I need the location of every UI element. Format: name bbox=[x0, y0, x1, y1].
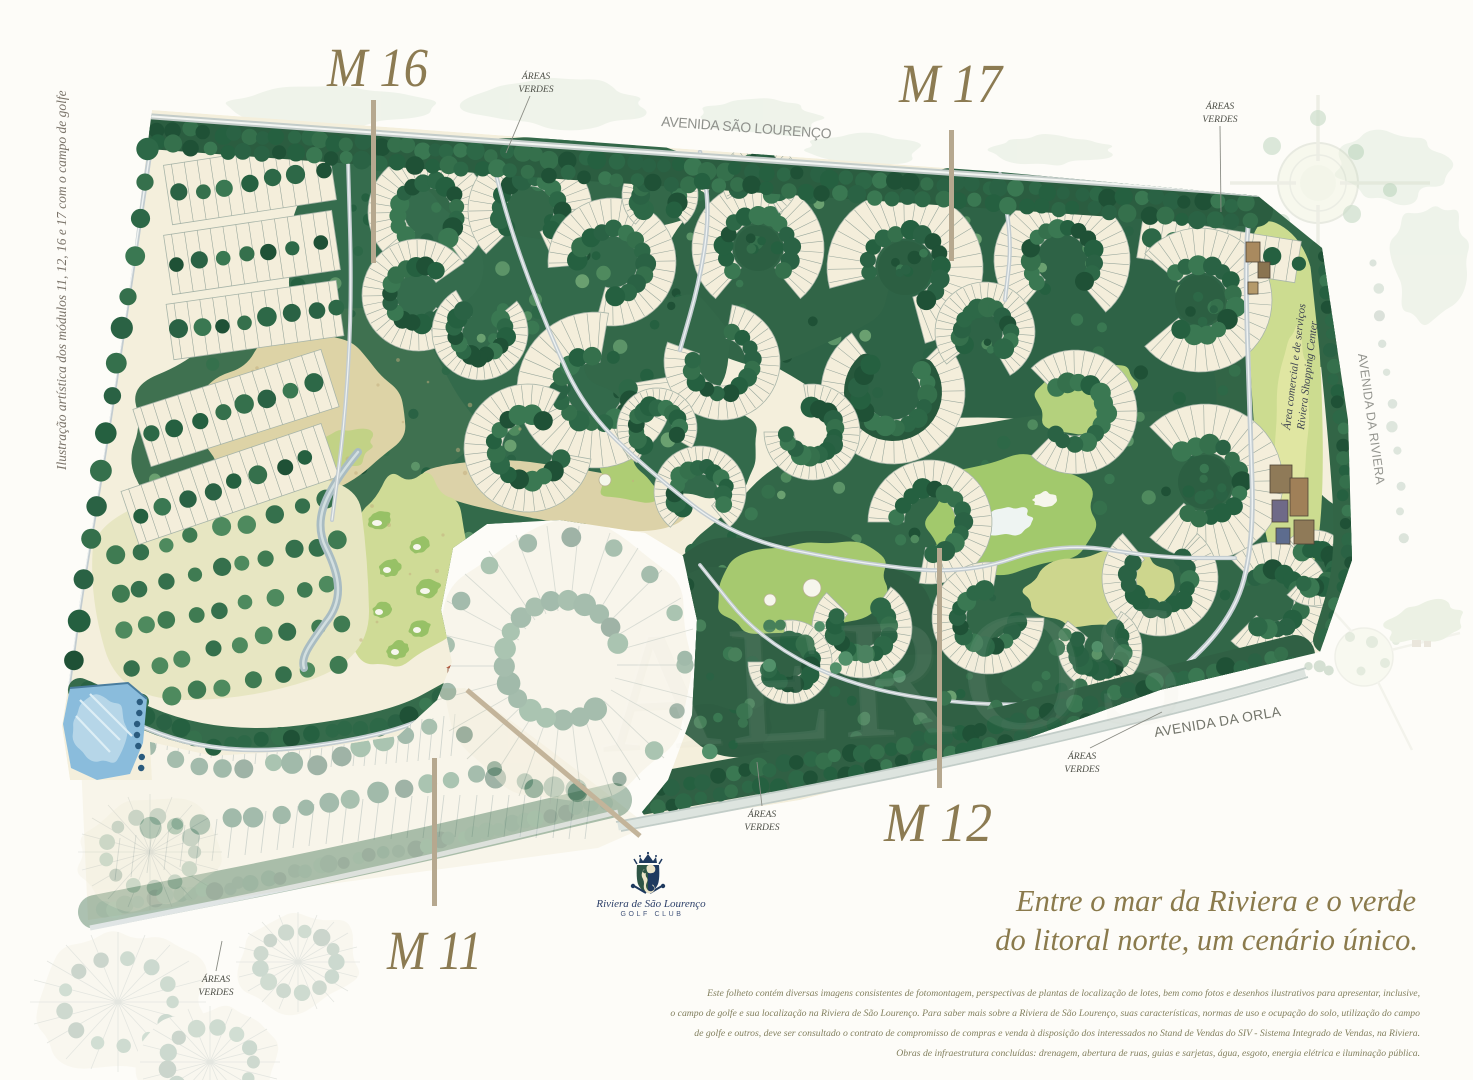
svg-text:VERDES: VERDES bbox=[744, 822, 779, 833]
svg-text:VERDES: VERDES bbox=[518, 84, 553, 95]
svg-text:Riviera de São Lourenço: Riviera de São Lourenço bbox=[595, 898, 706, 910]
svg-text:ÁREAS: ÁREAS bbox=[1067, 750, 1096, 762]
svg-text:ÁREAS: ÁREAS bbox=[201, 973, 230, 985]
svg-text:VERDES: VERDES bbox=[1202, 114, 1237, 125]
svg-text:Obras de infraestrutura conclu: Obras de infraestrutura concluídas: dren… bbox=[896, 1048, 1420, 1059]
svg-text:o campo de golfe e sua localiz: o campo de golfe e sua localização na Ri… bbox=[670, 1008, 1420, 1019]
svg-text:M 16: M 16 bbox=[326, 37, 428, 98]
svg-text:Entre o mar da Riviera e o ver: Entre o mar da Riviera e o verde bbox=[1015, 884, 1416, 918]
svg-text:ÁREAS: ÁREAS bbox=[747, 808, 776, 820]
svg-text:de golfe e outros, deve ser co: de golfe e outros, deve ser consultado o… bbox=[694, 1028, 1420, 1039]
svg-text:VERDES: VERDES bbox=[1064, 764, 1099, 775]
svg-text:M 12: M 12 bbox=[883, 792, 992, 853]
svg-text:AEROS: AEROS bbox=[594, 570, 1200, 789]
svg-text:Ilustração artística dos módul: Ilustração artística dos módulos 11, 12,… bbox=[54, 90, 69, 471]
svg-text:do litoral norte, um cenário ú: do litoral norte, um cenário único. bbox=[995, 923, 1418, 957]
svg-text:Este folheto contém diversas i: Este folheto contém diversas imagens con… bbox=[706, 988, 1420, 999]
svg-text:M 11: M 11 bbox=[386, 920, 482, 981]
svg-text:ÁREAS: ÁREAS bbox=[1205, 100, 1234, 112]
svg-text:M 17: M 17 bbox=[898, 53, 1004, 114]
svg-text:ÁREAS: ÁREAS bbox=[521, 70, 550, 82]
svg-text:VERDES: VERDES bbox=[198, 987, 233, 998]
svg-text:GOLF CLUB: GOLF CLUB bbox=[620, 911, 683, 918]
